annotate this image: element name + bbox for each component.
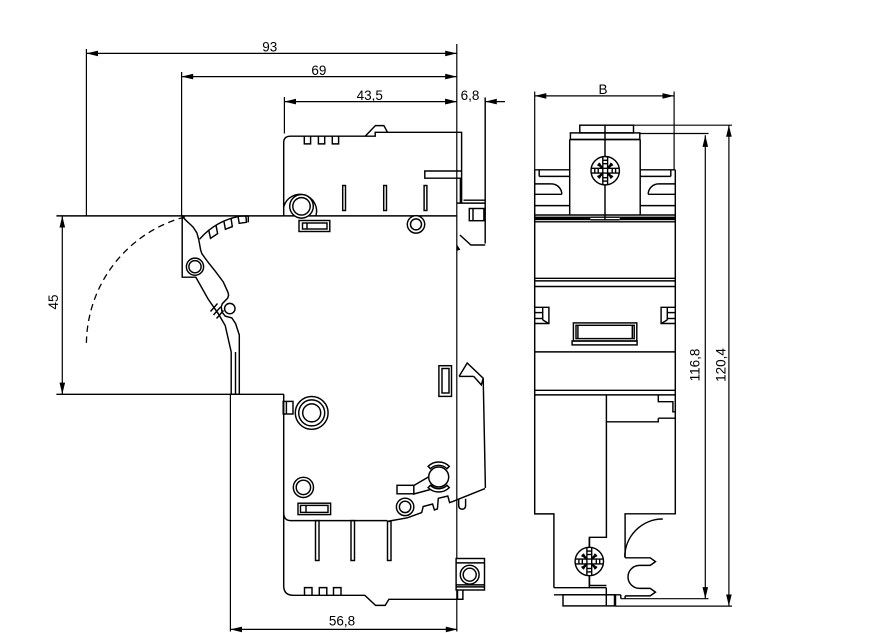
svg-text:120,4: 120,4 xyxy=(714,348,729,382)
svg-text:116,8: 116,8 xyxy=(688,349,703,382)
svg-text:56,8: 56,8 xyxy=(329,614,355,629)
svg-text:45: 45 xyxy=(46,294,61,309)
svg-text:B: B xyxy=(598,82,607,97)
svg-text:6,8: 6,8 xyxy=(461,88,480,103)
svg-text:43,5: 43,5 xyxy=(357,88,383,103)
svg-text:93: 93 xyxy=(262,39,277,54)
svg-text:69: 69 xyxy=(311,63,326,78)
